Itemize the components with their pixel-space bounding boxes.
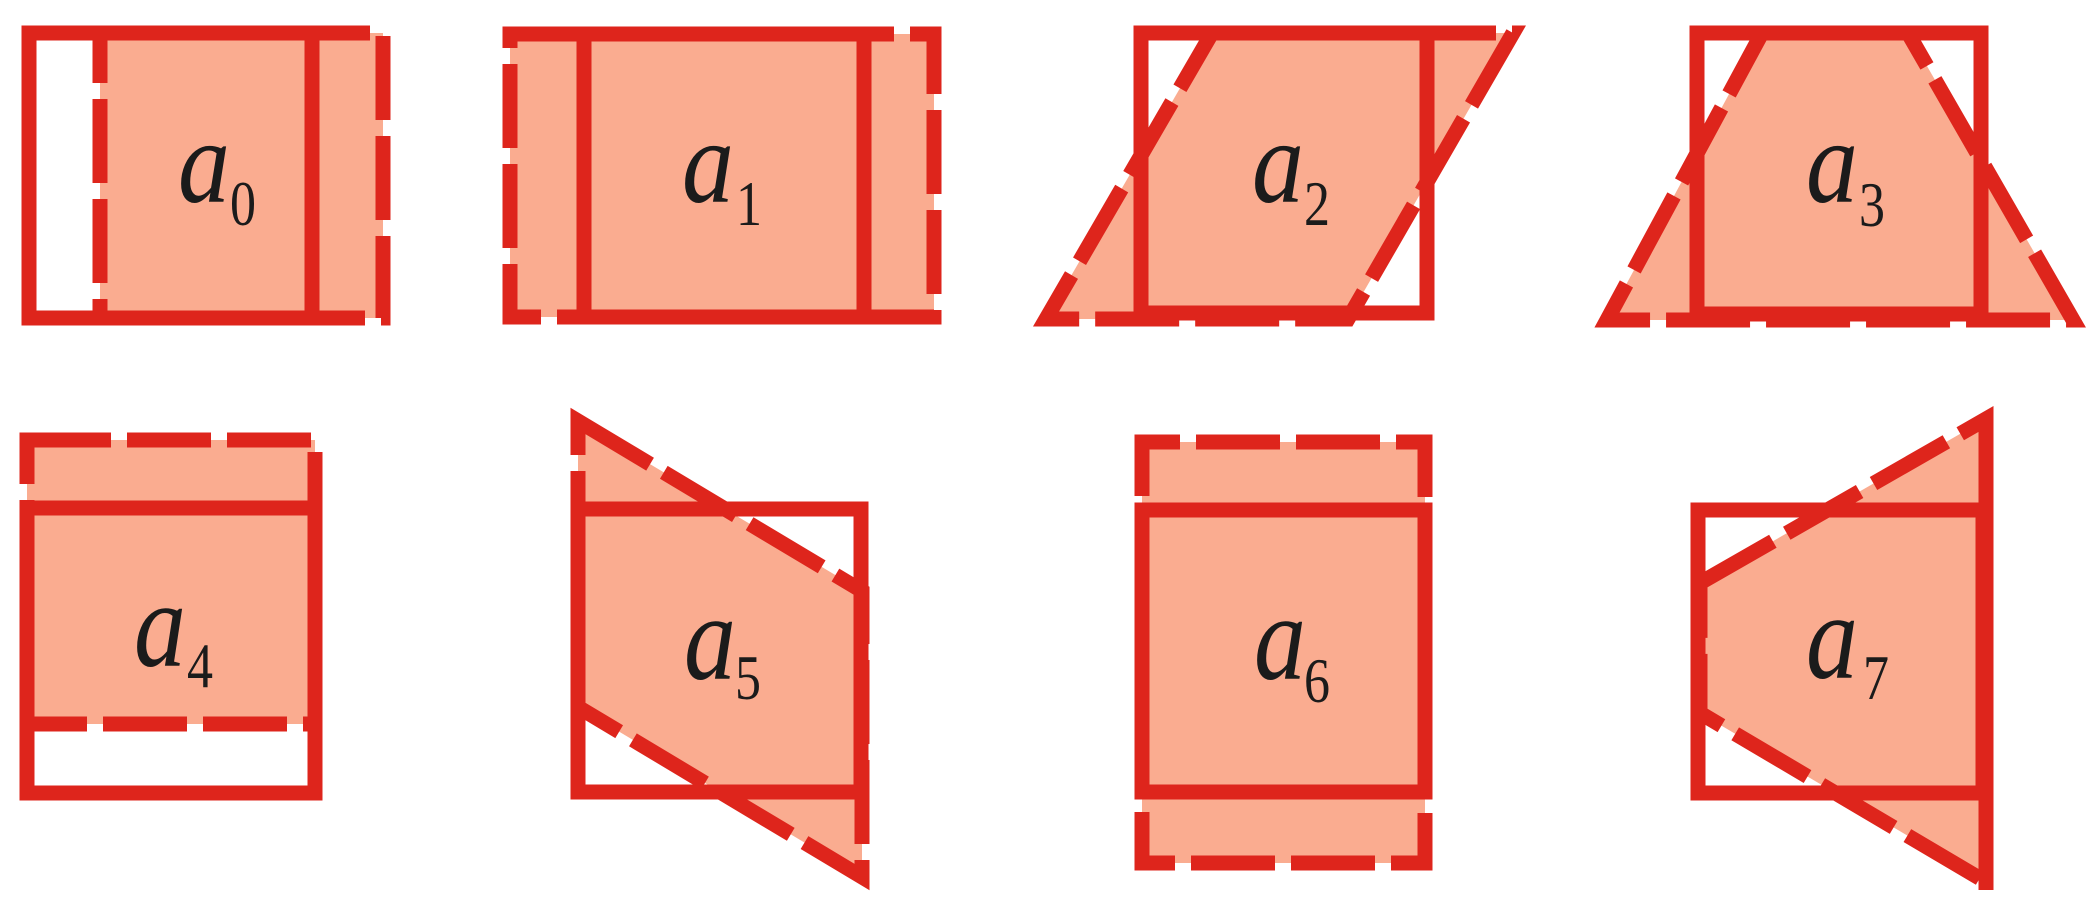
svg-text:a: a bbox=[684, 571, 736, 706]
svg-text:a: a bbox=[1806, 570, 1858, 705]
svg-text:5: 5 bbox=[735, 642, 761, 713]
svg-text:6: 6 bbox=[1304, 645, 1330, 716]
svg-text:1: 1 bbox=[736, 168, 762, 239]
svg-text:4: 4 bbox=[187, 630, 213, 701]
svg-text:a: a bbox=[178, 96, 230, 228]
svg-text:0: 0 bbox=[230, 168, 256, 239]
svg-text:a: a bbox=[1254, 571, 1306, 706]
svg-text:a: a bbox=[682, 96, 734, 228]
svg-text:a: a bbox=[1252, 96, 1304, 228]
svg-text:2: 2 bbox=[1304, 168, 1330, 239]
svg-text:a: a bbox=[134, 558, 186, 693]
svg-text:3: 3 bbox=[1859, 169, 1885, 240]
svg-text:7: 7 bbox=[1863, 642, 1889, 713]
svg-text:a: a bbox=[1806, 96, 1858, 228]
